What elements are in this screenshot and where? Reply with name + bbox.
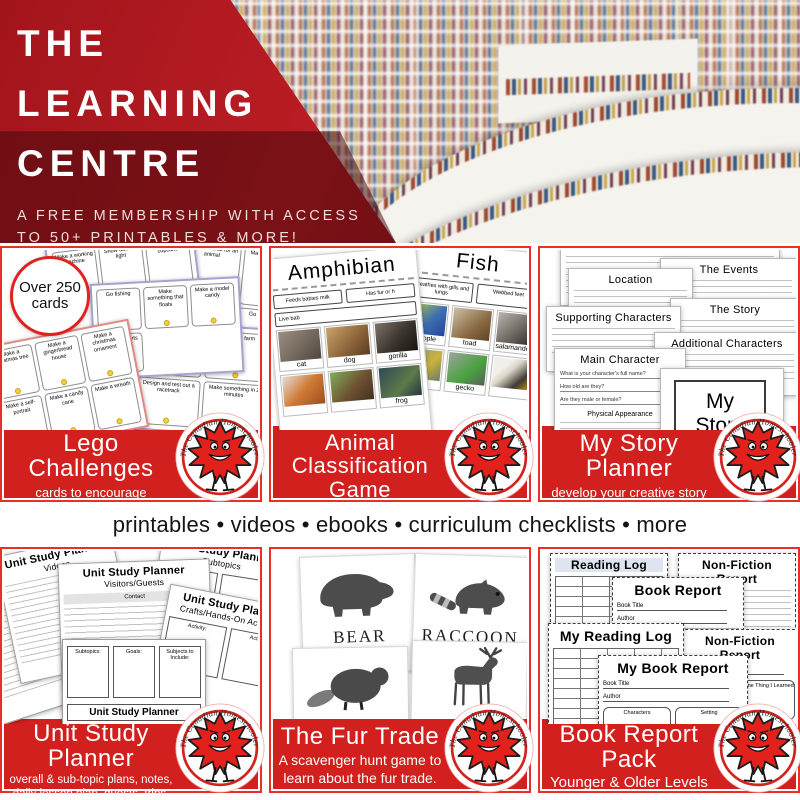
animal-tile: gorilla (372, 318, 421, 364)
card-subtitle: Younger & Older Levels Fiction/Non-Ficti… (546, 774, 712, 800)
animal-tile (328, 367, 377, 413)
beaver-illustration (298, 651, 403, 715)
product-card-animal-classification[interactable]: Amphibian Feeds babies milk Has fur or h… (269, 246, 531, 502)
animal-tile: toad (448, 305, 493, 351)
gecko-photo (447, 352, 487, 386)
challenge-card: Make a restaurant (239, 250, 258, 310)
book-card-art: Reading Log Non-Fiction Report Book Repo… (542, 551, 796, 724)
toad-photo (451, 307, 491, 341)
animal-tile: gecko (444, 350, 489, 396)
brand-badge: The Canadian Homeschooler (444, 412, 534, 502)
hero-text: THE LEARNING CENTRE A FREE MEMBERSHIP WI… (17, 14, 361, 243)
hero-banner: THE LEARNING CENTRE A FREE MEMBERSHIP WI… (0, 0, 800, 243)
hero-title: THE LEARNING CENTRE (17, 14, 361, 194)
gorilla-photo (374, 320, 418, 353)
frog-photo (378, 365, 422, 398)
smiley-icon (211, 318, 217, 324)
smiley-icon (164, 320, 170, 326)
challenge-card: Make something that floats (143, 285, 189, 330)
hero-title-line: LEARNING (17, 74, 361, 134)
smiley-icon (163, 417, 169, 423)
bear-illustration (305, 558, 411, 624)
card-title: Lego Challenges (8, 431, 174, 482)
product-card-fur-trade[interactable]: BEAR RACCOON (269, 547, 531, 793)
fur-card-beaver: BEAVER need (292, 646, 410, 724)
brand-badge: The Canadian Homeschooler (175, 412, 265, 502)
card-subtitle: overall & sub-topic plans, notes, daily … (8, 773, 174, 800)
lego-card-art: Make a working machine Show dark vs ligh… (4, 250, 258, 430)
salamander-photo (496, 312, 527, 346)
fur-card-art: BEAR RACCOON (273, 551, 527, 724)
story-card-art: The Events Location The Story Supporting… (542, 250, 796, 430)
animal-card-art: Amphibian Feeds babies milk Has fur or h… (273, 250, 527, 430)
card-title: Unit Study Planner (8, 721, 174, 772)
card-title: Book Report Pack (546, 722, 712, 773)
smiley-icon (107, 370, 114, 377)
card-subtitle: A scavenger hunt game to learn about the… (277, 752, 443, 786)
animal-tile (280, 371, 329, 417)
challenge-card: Make a christmas ornament (80, 326, 133, 383)
printable-page: Make a christmas tree Make a gingerbread… (4, 319, 149, 430)
brand-badge: The Canadian Homeschooler (713, 412, 800, 502)
product-card-book-report-pack[interactable]: Reading Log Non-Fiction Report Book Repo… (538, 547, 800, 793)
animal-tile: frog (376, 363, 425, 409)
animal-tile: salamander (492, 310, 527, 356)
features-divider: printables • videos • ebooks • curriculu… (0, 502, 800, 547)
card-title: The Fur Trade (277, 724, 443, 749)
challenge-card: Make a candy cane (44, 386, 96, 430)
cat-photo (278, 329, 322, 362)
challenge-card: Make a wreath (90, 377, 142, 430)
smiley-icon (14, 388, 21, 395)
brand-badge: The Canadian Homeschooler (444, 703, 534, 793)
hero-title-line: CENTRE (17, 134, 361, 194)
hero-title-line: THE (17, 14, 361, 74)
smiley-icon (116, 418, 123, 425)
challenge-card: Make a self-portrait (4, 395, 50, 430)
card-title: Animal Classification Game (277, 431, 443, 501)
fox-photo (282, 373, 326, 406)
card-title: My Story Planner (546, 431, 712, 482)
over-250-cards-sticker: Over 250 cards (10, 256, 90, 336)
animal-tile: dog (324, 322, 373, 368)
animal-tile (488, 354, 527, 400)
product-card-my-story-planner[interactable]: The Events Location The Story Supporting… (538, 246, 800, 502)
challenge-card: Make a model candy (190, 282, 236, 327)
hero-subtitle: A FREE MEMBERSHIP WITH ACCESS TO 50+ PRI… (17, 205, 361, 243)
printable-page: Amphibian Feeds babies milk Has fur or h… (273, 250, 433, 430)
smiley-icon (61, 379, 68, 386)
raccoon-illustration (419, 558, 525, 624)
eagle-photo (491, 357, 527, 391)
challenge-card: Make a gingerbread house (34, 335, 87, 392)
brand-badge: The Canadian Homeschooler (175, 703, 265, 793)
brand-badge: The Canadian Homeschooler (713, 703, 800, 793)
product-card-unit-study-planner[interactable]: Date Unit Study Planner Videos Unit Stud… (0, 547, 262, 793)
bear-photo (330, 369, 374, 402)
unit-card-art: Date Unit Study Planner Videos Unit Stud… (4, 551, 258, 724)
product-card-lego-challenges[interactable]: Make a working machine Show dark vs ligh… (0, 246, 262, 502)
smiley-icon (70, 427, 77, 430)
animal-tile: cat (276, 326, 325, 372)
learning-centre-promo: THE LEARNING CENTRE A FREE MEMBERSHIP WI… (0, 0, 800, 800)
dog-photo (326, 324, 370, 357)
